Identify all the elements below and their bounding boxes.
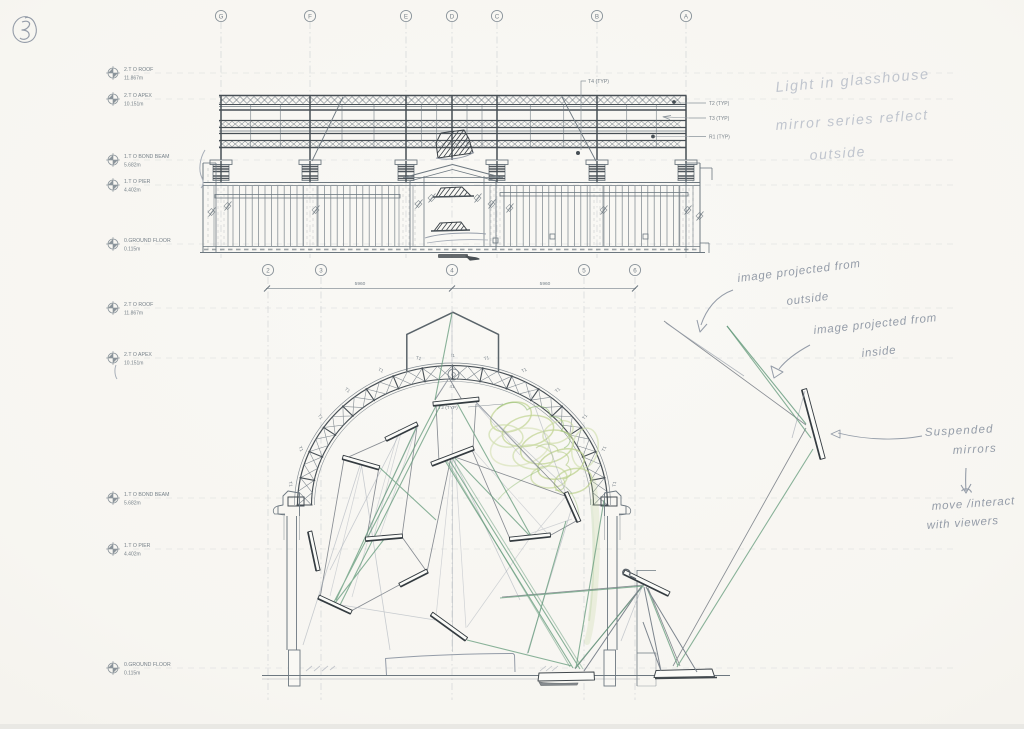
svg-text:G: G (219, 13, 224, 20)
svg-text:4.402m: 4.402m (124, 552, 141, 558)
svg-text:4.402m: 4.402m (124, 188, 141, 194)
svg-text:4: 4 (450, 268, 454, 275)
svg-text:0.GROUND FLOOR: 0.GROUND FLOOR (124, 238, 171, 244)
svg-text:2: 2 (266, 268, 270, 275)
svg-text:5: 5 (582, 268, 586, 275)
svg-text:T2 (TYP): T2 (TYP) (709, 101, 730, 107)
svg-text:10.151m: 10.151m (124, 102, 143, 108)
svg-text:2.T O ROOF: 2.T O ROOF (124, 67, 153, 73)
svg-text:6: 6 (633, 268, 637, 275)
svg-text:1.T O BOND BEAM: 1.T O BOND BEAM (124, 492, 169, 498)
svg-text:T3 (TYP): T3 (TYP) (709, 116, 730, 122)
svg-text:T4 (TYP): T4 (TYP) (588, 79, 609, 85)
svg-text:R1 (TYP): R1 (TYP) (709, 135, 730, 141)
svg-text:1.T O PIER: 1.T O PIER (124, 179, 151, 185)
svg-text:2.T O ROOF: 2.T O ROOF (124, 302, 153, 308)
svg-text:2.T O APEX: 2.T O APEX (124, 352, 152, 358)
svg-text:5.682m: 5.682m (124, 501, 141, 507)
svg-text:0.115m: 0.115m (124, 247, 140, 253)
svg-text:11.867m: 11.867m (124, 311, 143, 317)
svg-text:mirrors: mirrors (953, 443, 998, 457)
svg-text:5960: 5960 (355, 281, 366, 287)
svg-text:5960: 5960 (540, 281, 551, 287)
svg-text:5.682m: 5.682m (124, 163, 141, 169)
svg-text:0.115m: 0.115m (124, 671, 140, 677)
svg-text:3: 3 (319, 268, 323, 275)
svg-text:1.T O PIER: 1.T O PIER (124, 543, 151, 549)
svg-text:B: B (595, 13, 599, 20)
svg-text:C: C (495, 13, 500, 20)
svg-text:10.151m: 10.151m (124, 361, 143, 367)
svg-text:11.867m: 11.867m (124, 76, 143, 82)
svg-text:0.GROUND FLOOR: 0.GROUND FLOOR (124, 662, 171, 668)
svg-text:F: F (308, 13, 312, 20)
svg-text:E: E (404, 13, 408, 20)
svg-text:2.T O APEX: 2.T O APEX (124, 93, 152, 99)
svg-text:D: D (450, 13, 455, 20)
svg-text:1.T O BOND BEAM: 1.T O BOND BEAM (124, 154, 169, 160)
